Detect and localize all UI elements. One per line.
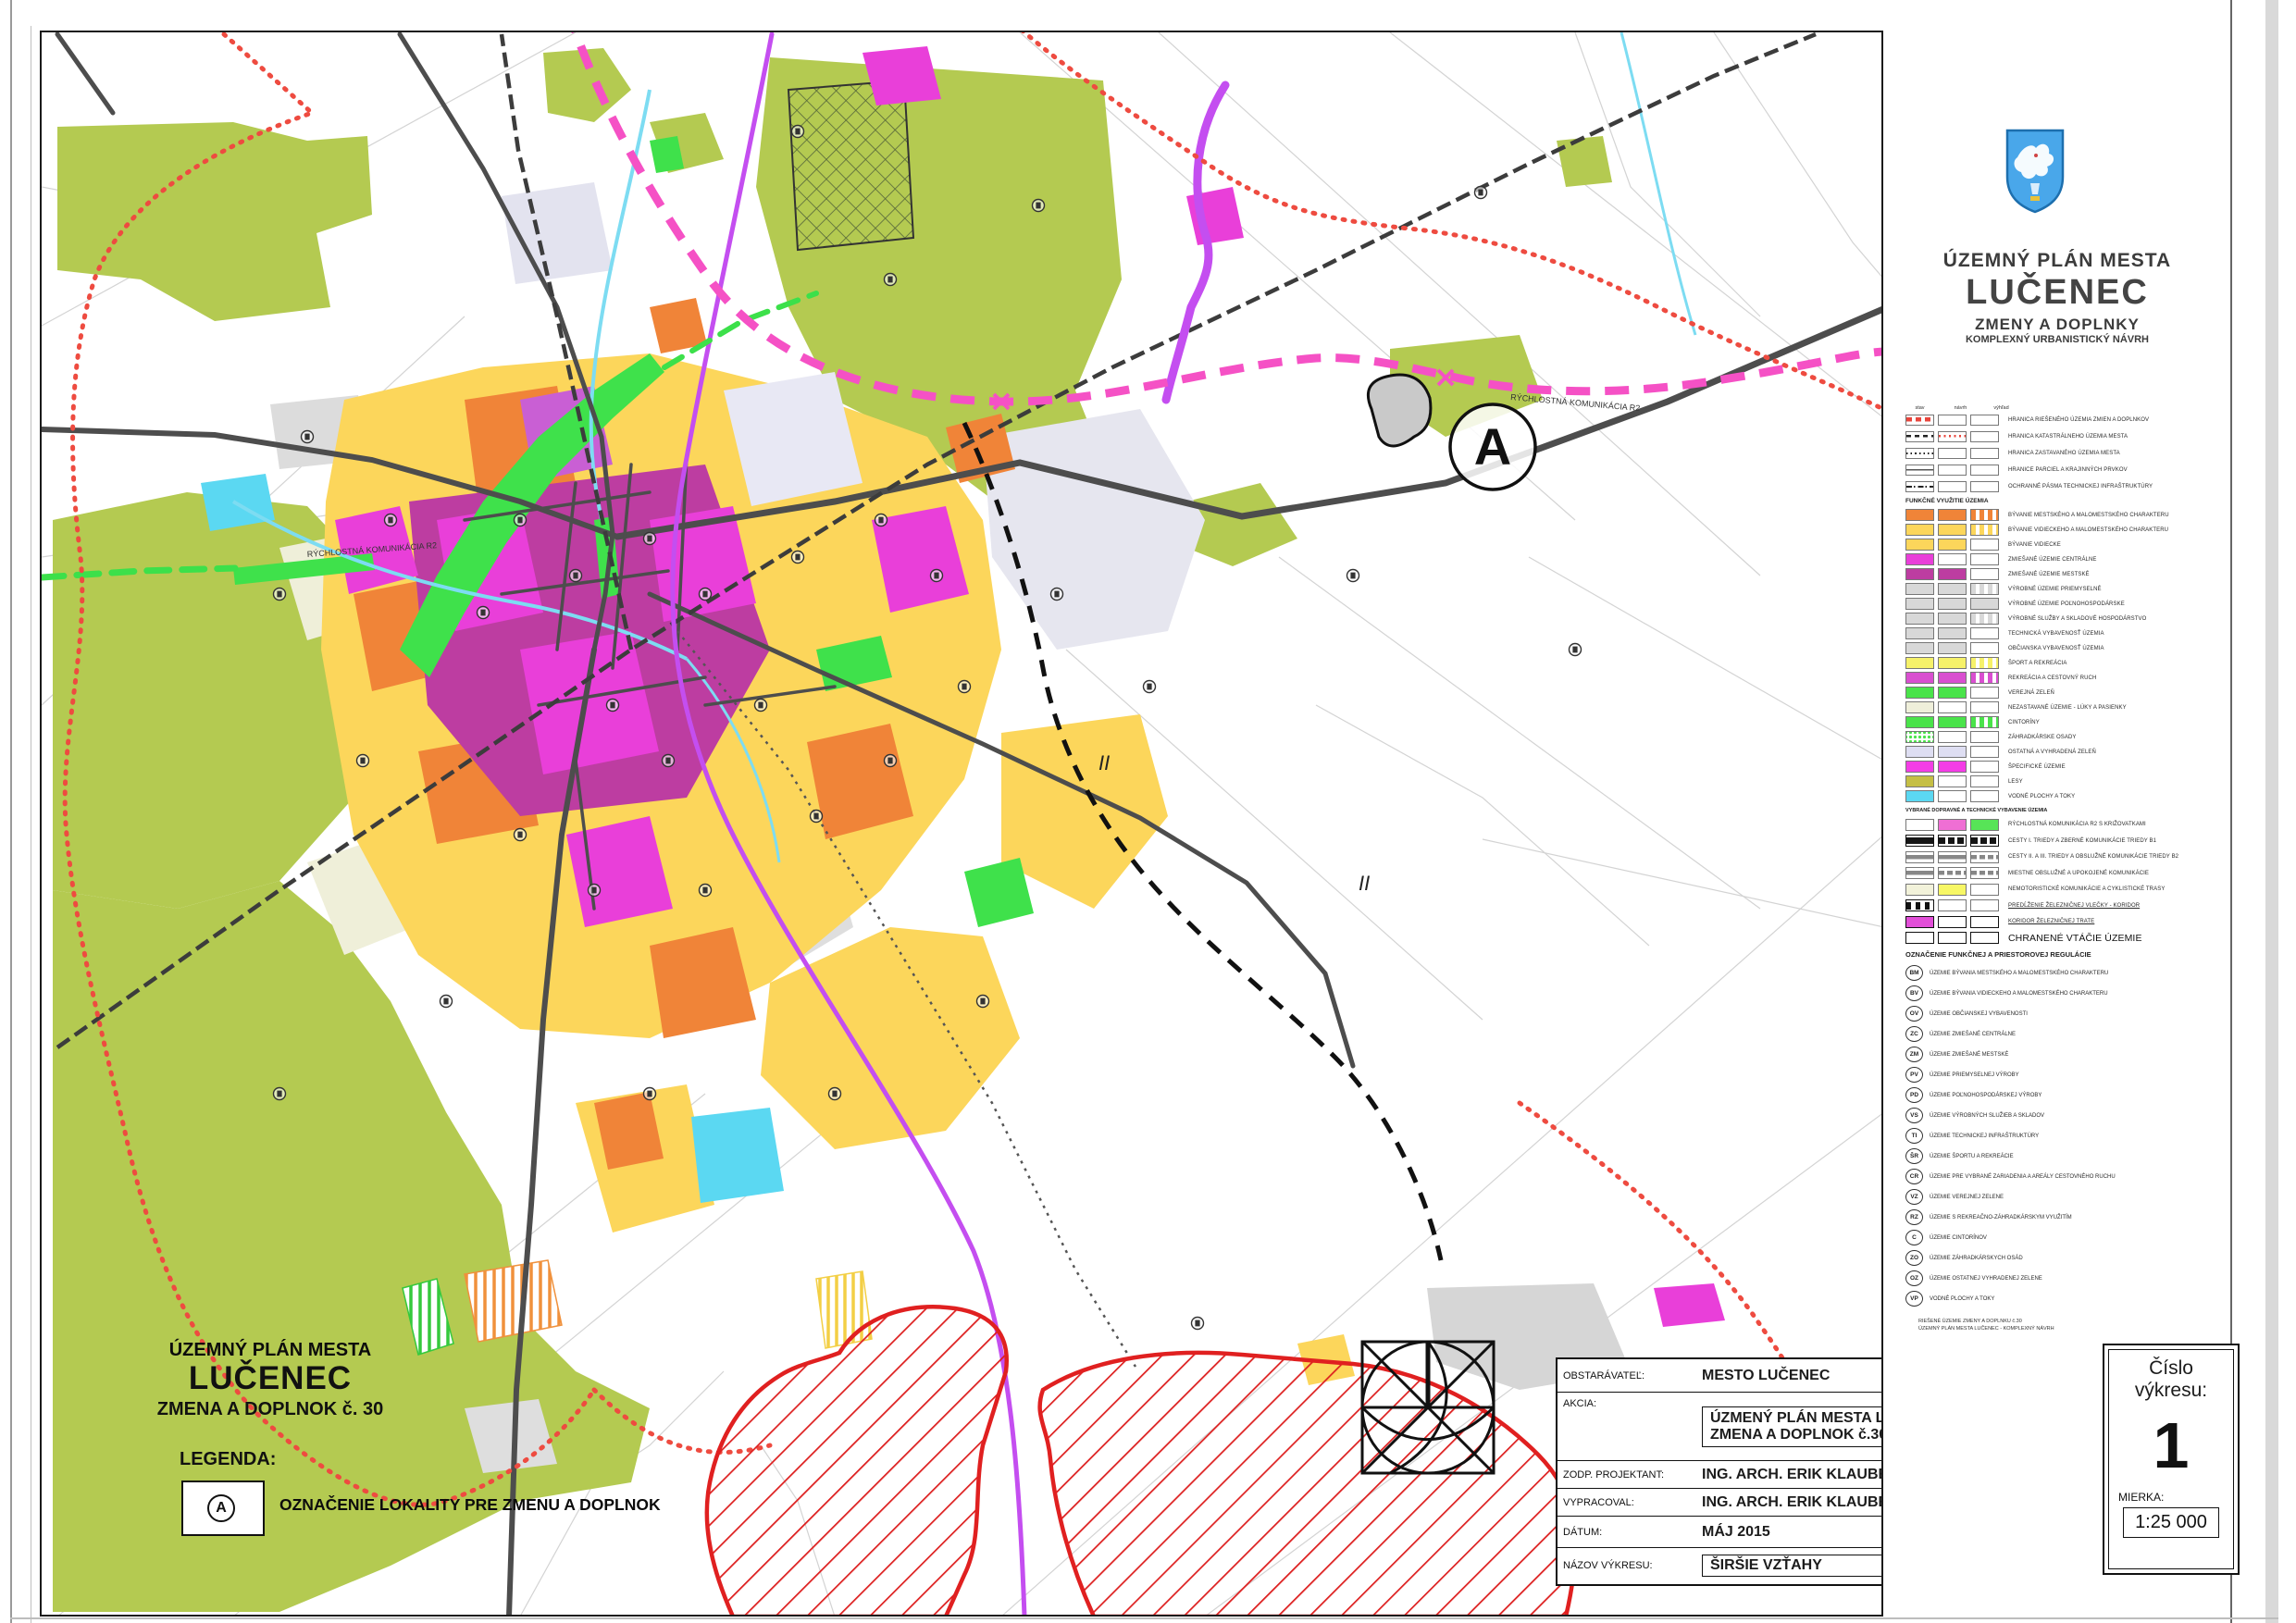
regulation-code-badge: VZ: [1905, 1189, 1923, 1205]
legend-swatch: [1938, 627, 1967, 639]
regulation-code-badge: VS: [1905, 1108, 1923, 1123]
legend-code-row: PDÚZEMIE POĽNOHOSPODÁRSKEJ VÝROBY: [1905, 1085, 2226, 1106]
legend-row-label: BÝVANIE VIDIECKEHO A MALOMESTSKÉHO CHARA…: [2008, 527, 2168, 533]
legend-code-row: ZOÚZEMIE ZÁHRADKÁRSKYCH OSÁD: [1905, 1248, 2226, 1269]
legend-swatch: [1938, 613, 1967, 625]
field-value: MESTO LUČENEC: [1702, 1368, 1830, 1384]
legend-row-label: OCHRANNÉ PÁSMA TECHNICKEJ INFRAŠTRUKTÚRY: [2008, 484, 2153, 489]
legend-row: BÝVANIE VIDIECKEHO A MALOMESTSKÉHO CHARA…: [1905, 524, 2226, 536]
legend-swatch: [1905, 524, 1934, 536]
field-label: DÁTUM:: [1558, 1527, 1702, 1538]
legend-section-header: OZNAČENIE FUNKČNEJ A PRIESTOROVEJ REGULÁ…: [1905, 950, 2226, 959]
legend-swatch: [1905, 687, 1934, 699]
field-value: ŠIRŠIE VZŤAHY: [1710, 1557, 1822, 1573]
legend-row-label: VÝROBNÉ SLUŽBY A SKLADOVÉ HOSPODÁRSTVO: [2008, 616, 2146, 622]
legend-swatch: [1970, 583, 1999, 595]
legend-swatch: [1970, 613, 1999, 625]
legend-row-label: HRANICA RIEŠENÉHO ÚZEMIA ZMIEN A DOPLNKO…: [2008, 417, 2149, 423]
legend-swatch: [1938, 431, 1967, 442]
legend-swatch: [1938, 790, 1967, 802]
legend-swatch: [1970, 851, 1999, 863]
legend-swatch: [1970, 642, 1999, 654]
regulation-code-badge: PD: [1905, 1087, 1923, 1103]
legend-row: ZMIEŠANÉ ÚZEMIE CENTRÁLNE: [1905, 553, 2226, 565]
legend-swatch: [1970, 916, 1999, 928]
map-legend-label: LEGENDA:: [180, 1449, 276, 1470]
map-legend: stav návrh výhľad HRANICA RIEŠENÉHO ÚZEM…: [1905, 405, 2226, 1332]
legend-swatch: [1905, 448, 1934, 459]
legend-swatch: [1905, 481, 1934, 492]
legend-row-label: CESTY I. TRIEDY A ZBERNÉ KOMUNIKÁCIE TRI…: [2008, 838, 2156, 844]
legend-col-header: návrh: [1946, 405, 1975, 411]
legend-row-label: HRANICA KATASTRÁLNEHO ÚZEMIA MESTA: [2008, 434, 2128, 440]
legend-row: BÝVANIE VIDIECKE: [1905, 539, 2226, 551]
legend-code-label: ÚZEMIE S REKREAČNO-ZÁHRADKÁRSKYM VYUŽITÍ…: [1930, 1215, 2072, 1220]
legend-code-row: OVÚZEMIE OBČIANSKEJ VYBAVENOSTI: [1905, 1004, 2226, 1024]
legend-row-label: PREDĹŽENIE ŽELEZNIČNEJ VLEČKY - KORIDOR: [2008, 903, 2140, 909]
legend-footnote: RIEŠENÉ ÚZEMIE ZMENY A DOPLNKU č.30: [1918, 1319, 2226, 1324]
legend-code-row: BMÚZEMIE BÝVANIA MESTSKÉHO A MALOMESTSKÉ…: [1905, 963, 2226, 984]
legend-row-label: VÝROBNÉ ÚZEMIE POĽNOHOSPODÁRSKE: [2008, 601, 2125, 607]
legend-swatch: [1938, 524, 1967, 536]
legend-code-row: BVÚZEMIE BÝVANIA VIDIECKEHO A MALOMESTSK…: [1905, 984, 2226, 1004]
legend-swatch: [1970, 884, 1999, 896]
map-title-line3: ZMENA A DOPLNOK č. 30: [113, 1399, 428, 1420]
field-label: ZODP. PROJEKTANT:: [1558, 1469, 1702, 1481]
legend-swatch: [1970, 899, 1999, 911]
legend-swatch: [1905, 932, 1934, 944]
legend-row-label: KORIDOR ŽELEZNIČNEJ TRATE: [2008, 919, 2094, 924]
legend-swatch: [1970, 932, 1999, 944]
legend-swatch: [1938, 867, 1967, 879]
legend-swatch: [1970, 415, 1999, 426]
legend-swatch: [1905, 851, 1934, 863]
field-value: ING. ARCH. ERIK KLAUBERT: [1702, 1494, 1883, 1511]
legend-swatch: [1905, 746, 1934, 758]
title-block-row: DÁTUM: MÁJ 2015: [1558, 1517, 1883, 1548]
plan-sheet: A II II RÝCHLOSTNÁ KOMUNIKÁCIA R2 RÝCHLO…: [0, 0, 2296, 1623]
legend-swatch: [1938, 932, 1967, 944]
legend-swatch: [1938, 899, 1967, 911]
legend-row: CESTY II. A III. TRIEDY A OBSLUŽNÉ KOMUN…: [1905, 850, 2226, 863]
legend-code-label: ÚZEMIE OBČIANSKEJ VYBAVENOSTI: [1930, 1011, 2028, 1017]
legend-row: HRANICE PARCIEL A KRAJINNÝCH PRVKOV: [1905, 464, 2226, 476]
regulation-code-badge: ZO: [1905, 1250, 1923, 1266]
scale-value: 1:25 000: [2123, 1507, 2219, 1538]
regulation-code-badge: ZC: [1905, 1026, 1923, 1042]
legend-row: CESTY I. TRIEDY A ZBERNÉ KOMUNIKÁCIE TRI…: [1905, 835, 2226, 848]
legend-code-row: VPVODNÉ PLOCHY A TOKY: [1905, 1289, 2226, 1309]
legend-swatch: [1938, 851, 1967, 863]
legend-code-row: CÚZEMIE CINTORÍNOV: [1905, 1228, 2226, 1248]
legend-code-label: ÚZEMIE OSTATNEJ VYHRADENEJ ZELENE: [1930, 1276, 2042, 1282]
title-block-row: ZODP. PROJEKTANT: ING. ARCH. ERIK KLAUBE…: [1558, 1461, 1883, 1489]
legend-row-label: ZMIEŠANÉ ÚZEMIE CENTRÁLNE: [2008, 557, 2097, 563]
legend-row: VÝROBNÉ ÚZEMIE PRIEMYSELNÉ: [1905, 583, 2226, 595]
legend-swatch: [1905, 583, 1934, 595]
legend-marker-description: OZNAČENIE LOKALITY PRE ZMENU A DOPLNOK: [279, 1495, 661, 1515]
legend-swatch: [1905, 701, 1934, 713]
legend-row-label: BÝVANIE VIDIECKE: [2008, 542, 2061, 548]
legend-row-label: RÝCHLOSTNÁ KOMUNIKÁCIA R2 S KRIŽOVATKAMI: [2008, 822, 2146, 827]
map-title-line2: LUČENEC: [113, 1360, 428, 1397]
legend-row: ZÁHRADKÁRSKE OSADY: [1905, 731, 2226, 743]
legend-swatch: [1970, 716, 1999, 728]
legend-row: VÝROBNÉ ÚZEMIE POĽNOHOSPODÁRSKE: [1905, 598, 2226, 610]
drawing-number-label: Číslo: [2149, 1357, 2193, 1380]
legend-code-label: ÚZEMIE PRE VYBRANÉ ZARIADENIA A AREÁLY C…: [1930, 1174, 2116, 1180]
legend-swatch: [1938, 775, 1967, 787]
scale-label: MIERKA:: [2118, 1491, 2164, 1504]
legend-row-label: BÝVANIE MESTSKÉHO A MALOMESTSKÉHO CHARAK…: [2008, 513, 2169, 518]
legend-code-label: ÚZEMIE VEREJNEJ ZELENE: [1930, 1195, 2004, 1200]
legend-swatch: [1970, 657, 1999, 669]
regulation-code-badge: OV: [1905, 1006, 1923, 1022]
legend-swatch: [1905, 775, 1934, 787]
legend-transport-symbols: RÝCHLOSTNÁ KOMUNIKÁCIA R2 S KRIŽOVATKAMI…: [1905, 818, 2226, 945]
legend-row: BÝVANIE MESTSKÉHO A MALOMESTSKÉHO CHARAK…: [1905, 509, 2226, 521]
legend-swatch: [1970, 775, 1999, 787]
field-label: VYPRACOVAL:: [1558, 1497, 1702, 1508]
legend-swatch: [1905, 672, 1934, 684]
legend-swatch: [1938, 884, 1967, 896]
drawing-number-inner: Číslo výkresu: 1 MIERKA: 1:25 000: [2108, 1349, 2234, 1569]
regulation-code-badge: VP: [1905, 1291, 1923, 1307]
panel-title-line1: ÚZEMNÝ PLÁN MESTA: [1885, 250, 2229, 272]
legend-swatch: [1970, 687, 1999, 699]
legend-swatch: [1938, 672, 1967, 684]
legend-swatch: [1970, 448, 1999, 459]
legend-swatch: [1938, 553, 1967, 565]
locality-a-site-blob: [1368, 375, 1431, 446]
legend-swatch: [1905, 465, 1934, 476]
locality-a-label: A: [1474, 417, 1511, 476]
legend-code-row: PVÚZEMIE PRIEMYSELNEJ VÝROBY: [1905, 1065, 2226, 1085]
legend-swatch: [1905, 657, 1934, 669]
field-value-box: ŠIRŠIE VZŤAHY: [1702, 1555, 1883, 1577]
legend-swatch: [1938, 598, 1967, 610]
legend-swatch: [1938, 568, 1967, 580]
legend-swatch: [1970, 867, 1999, 879]
regulation-code-badge: TI: [1905, 1128, 1923, 1144]
locality-marker-icon: A: [207, 1494, 235, 1522]
legend-line-symbols: HRANICA RIEŠENÉHO ÚZEMIA ZMIEN A DOPLNKO…: [1905, 414, 2226, 492]
legend-swatch: [1905, 539, 1934, 551]
legend-swatch: [1970, 568, 1999, 580]
legend-swatch: [1938, 539, 1967, 551]
legend-row-label: ŠPECIFICKÉ ÚZEMIE: [2008, 764, 2066, 770]
legend-row-label: HRANICE PARCIEL A KRAJINNÝCH PRVKOV: [2008, 467, 2128, 473]
legend-row: OCHRANNÉ PÁSMA TECHNICKEJ INFRAŠTRUKTÚRY: [1905, 480, 2226, 492]
legend-row-label: TECHNICKÁ VYBAVENOSŤ ÚZEMIA: [2008, 631, 2104, 637]
drawing-number-label: výkresu:: [2135, 1380, 2207, 1402]
legend-swatch: [1905, 916, 1934, 928]
legend-row: REKREÁCIA A CESTOVNÝ RUCH: [1905, 672, 2226, 684]
legend-swatch: [1938, 701, 1967, 713]
legend-row: NEZASTAVANÉ ÚZEMIE - LÚKY A PASIENKY: [1905, 701, 2226, 713]
legend-row-label: NEZASTAVANÉ ÚZEMIE - LÚKY A PASIENKY: [2008, 705, 2127, 711]
legend-code-row: RZÚZEMIE S REKREAČNO-ZÁHRADKÁRSKYM VYUŽI…: [1905, 1208, 2226, 1228]
legend-swatch: [1938, 465, 1967, 476]
field-value: ZMENA A DOPLNOK č.30: [1710, 1427, 1883, 1443]
legend-swatch: [1938, 583, 1967, 595]
legend-row: HRANICA KATASTRÁLNEHO ÚZEMIA MESTA: [1905, 430, 2226, 442]
field-label: NÁZOV VÝKRESU:: [1558, 1560, 1702, 1571]
legend-swatch: [1970, 819, 1999, 831]
locality-a-marker: A: [1450, 404, 1535, 489]
regulation-code-badge: CR: [1905, 1169, 1923, 1184]
legend-swatch: [1970, 835, 1999, 847]
regulation-code-badge: BM: [1905, 965, 1923, 981]
legend-row-label: OBČIANSKA VYBAVENOSŤ ÚZEMIA: [2008, 646, 2104, 651]
panel-title-line3: ZMENY A DOPLNKY: [1885, 316, 2229, 334]
legend-swatch: [1938, 731, 1967, 743]
legend-swatch: [1905, 598, 1934, 610]
legend-row: PREDĹŽENIE ŽELEZNIČNEJ VLEČKY - KORIDOR: [1905, 899, 2226, 912]
legend-code-label: ÚZEMIE ZMIEŠANÉ CENTRÁLNE: [1930, 1032, 2016, 1037]
scan-edge-right: [2265, 0, 2278, 1623]
legend-swatch: [1970, 465, 1999, 476]
legend-swatch: [1905, 867, 1934, 879]
legend-swatch: [1970, 509, 1999, 521]
legend-row-label: VÝROBNÉ ÚZEMIE PRIEMYSELNÉ: [2008, 587, 2102, 592]
legend-row-label: ZÁHRADKÁRSKE OSADY: [2008, 735, 2076, 740]
legend-code-label: ÚZEMIE BÝVANIA VIDIECKEHO A MALOMESTSKÉH…: [1930, 991, 2108, 997]
legend-swatch: [1970, 524, 1999, 536]
legend-swatch: [1938, 657, 1967, 669]
legend-swatch: [1905, 431, 1934, 442]
field-label: AKCIA:: [1558, 1398, 1702, 1409]
legend-code-row: ZCÚZEMIE ZMIEŠANÉ CENTRÁLNE: [1905, 1024, 2226, 1045]
legend-row: KORIDOR ŽELEZNIČNEJ TRATE: [1905, 915, 2226, 928]
legend-swatch: [1938, 819, 1967, 831]
legend-row: CHRANENÉ VTÁČIE ÚZEMIE: [1905, 932, 2226, 945]
title-block-row: VYPRACOVAL: ING. ARCH. ERIK KLAUBERT: [1558, 1489, 1883, 1517]
legend-swatch: [1905, 731, 1934, 743]
legend-row-label: NEMOTORISTICKÉ KOMUNIKÁCIE A CYKLISTICKÉ…: [2008, 886, 2165, 892]
regulation-code-badge: OZ: [1905, 1270, 1923, 1286]
legend-section-header: VYBRANÉ DOPRAVNÉ A TECHNICKÉ VYBAVENIE Ú…: [1905, 808, 2226, 813]
legend-swatch: [1970, 481, 1999, 492]
legend-row-label: CESTY II. A III. TRIEDY A OBSLUŽNÉ KOMUN…: [2008, 854, 2178, 860]
title-block-row: AKCIA: ÚZMENÝ PLÁN MESTA LUČENEC ZMENA A…: [1558, 1393, 1883, 1461]
legend-swatch: [1970, 431, 1999, 442]
legend-col-header: výhľad: [1987, 405, 2016, 411]
legend-column-headers: stav návrh výhľad: [1905, 405, 2226, 411]
legend-code-label: ÚZEMIE ZMIEŠANÉ MESTSKÉ: [1930, 1052, 2008, 1058]
legend-row: MIESTNE OBSLUŽNÉ A UPOKOJENÉ KOMUNIKÁCIE: [1905, 867, 2226, 880]
legend-swatch: [1938, 746, 1967, 758]
regulation-code-badge: RZ: [1905, 1209, 1923, 1225]
legend-row-label: HRANICA ZASTAVANÉHO ÚZEMIA MESTA: [2008, 451, 2120, 456]
drawing-number-value: 1: [2153, 1413, 2190, 1478]
legend-swatch: [1938, 642, 1967, 654]
road-class-label: II: [1359, 872, 1370, 895]
title-block: OBSTARÁVATEĽ: MESTO LUČENEC AKCIA: ÚZMEN…: [1556, 1357, 1883, 1586]
legend-row: OBČIANSKA VYBAVENOSŤ ÚZEMIA: [1905, 642, 2226, 654]
legend-swatch: [1905, 761, 1934, 773]
legend-code-row: VSÚZEMIE VÝROBNÝCH SLUŽIEB A SKLADOV: [1905, 1106, 2226, 1126]
legend-swatch: [1938, 761, 1967, 773]
legend-row: VEREJNÁ ZELEŇ: [1905, 687, 2226, 699]
legend-row: ZMIEŠANÉ ÚZEMIE MESTSKÉ: [1905, 568, 2226, 580]
field-value: ÚZMENÝ PLÁN MESTA LUČENEC: [1710, 1410, 1883, 1427]
legend-swatch: [1905, 835, 1934, 847]
legend-marker-box: A: [181, 1481, 265, 1536]
legend-swatch: [1970, 672, 1999, 684]
legend-swatch: [1905, 642, 1934, 654]
legend-swatch: [1905, 613, 1934, 625]
legend-swatch: [1905, 716, 1934, 728]
legend-footnotes: RIEŠENÉ ÚZEMIE ZMENY A DOPLNKU č.30ÚZEMN…: [1918, 1319, 2226, 1332]
legend-swatch: [1905, 553, 1934, 565]
road-name-label: RÝCHLOSTNÁ KOMUNIKÁCIA R2: [1510, 392, 1641, 413]
legend-row-label: ŠPORT A REKREÁCIA: [2008, 661, 2067, 666]
title-block-row: NÁZOV VÝKRESU: ŠIRŠIE VZŤAHY: [1558, 1548, 1883, 1583]
road-class-label: II: [1098, 751, 1110, 774]
legend-row-label: CHRANENÉ VTÁČIE ÚZEMIE: [2008, 933, 2142, 944]
legend-code-row: OZÚZEMIE OSTATNEJ VYHRADENEJ ZELENE: [1905, 1269, 2226, 1289]
legend-row: OSTATNÁ A VYHRADENÁ ZELEŇ: [1905, 746, 2226, 758]
legend-code-symbols: BMÚZEMIE BÝVANIA MESTSKÉHO A MALOMESTSKÉ…: [1905, 963, 2226, 1309]
legend-row: NEMOTORISTICKÉ KOMUNIKÁCIE A CYKLISTICKÉ…: [1905, 883, 2226, 896]
legend-swatch: [1970, 539, 1999, 551]
lucenec-coat-of-arms-icon: [2004, 128, 2066, 215]
legend-code-row: VZÚZEMIE VEREJNEJ ZELENE: [1905, 1187, 2226, 1208]
legend-row-label: VODNÉ PLOCHY A TOKY: [2008, 794, 2075, 799]
regulation-code-badge: PV: [1905, 1067, 1923, 1083]
legend-section-header: FUNKČNÉ VYUŽITIE ÚZEMIA: [1905, 498, 2226, 504]
legend-swatch: [1938, 509, 1967, 521]
legend-swatch: [1970, 553, 1999, 565]
legend-swatch: [1905, 509, 1934, 521]
title-block-row: OBSTARÁVATEĽ: MESTO LUČENEC: [1558, 1359, 1883, 1393]
field-label: OBSTARÁVATEĽ:: [1558, 1370, 1702, 1381]
legend-code-label: ÚZEMIE BÝVANIA MESTSKÉHO A MALOMESTSKÉHO…: [1930, 971, 2108, 976]
legend-swatch: [1970, 746, 1999, 758]
regulation-code-badge: ZM: [1905, 1047, 1923, 1062]
legend-row-label: CINTORÍNY: [2008, 720, 2040, 725]
legend-swatch: [1938, 916, 1967, 928]
legend-swatch: [1938, 687, 1967, 699]
legend-swatch: [1970, 761, 1999, 773]
legend-col-header: stav: [1905, 405, 1934, 411]
legend-code-label: ÚZEMIE PRIEMYSELNEJ VÝROBY: [1930, 1072, 2019, 1078]
legend-footnote: ÚZEMNÝ PLÁN MESTA LUČENEC - KOMPLEXNÝ NÁ…: [1918, 1326, 2226, 1332]
legend-row: LESY: [1905, 775, 2226, 787]
legend-swatch: [1905, 899, 1934, 911]
field-value: ING. ARCH. ERIK KLAUBERT: [1702, 1467, 1883, 1483]
scan-edge-left: [10, 0, 12, 1623]
legend-code-label: ÚZEMIE CINTORÍNOV: [1930, 1235, 1987, 1241]
legend-code-label: ÚZEMIE TECHNICKEJ INFRAŠTRUKTÚRY: [1930, 1134, 2039, 1139]
legend-swatch: [1905, 884, 1934, 896]
legend-code-row: TIÚZEMIE TECHNICKEJ INFRAŠTRUKTÚRY: [1905, 1126, 2226, 1146]
legend-code-label: ÚZEMIE VÝROBNÝCH SLUŽIEB A SKLADOV: [1930, 1113, 2044, 1119]
legend-row-label: REKREÁCIA A CESTOVNÝ RUCH: [2008, 675, 2096, 681]
regulation-code-badge: ŠR: [1905, 1148, 1923, 1164]
map-canvas: A II II RÝCHLOSTNÁ KOMUNIKÁCIA R2 RÝCHLO…: [40, 31, 1883, 1617]
legend-swatch: [1938, 448, 1967, 459]
legend-code-row: ZMÚZEMIE ZMIEŠANÉ MESTSKÉ: [1905, 1045, 2226, 1065]
legend-code-row: ŠRÚZEMIE ŠPORTU A REKREÁCIE: [1905, 1146, 2226, 1167]
legend-swatch: [1938, 481, 1967, 492]
legend-swatch: [1970, 627, 1999, 639]
legend-swatch: [1905, 415, 1934, 426]
legend-row: HRANICA RIEŠENÉHO ÚZEMIA ZMIEN A DOPLNKO…: [1905, 414, 2226, 426]
legend-swatch: [1905, 568, 1934, 580]
legend-row: HRANICA ZASTAVANÉHO ÚZEMIA MESTA: [1905, 447, 2226, 459]
legend-code-label: VODNÉ PLOCHY A TOKY: [1930, 1296, 1994, 1302]
legend-code-label: ÚZEMIE ZÁHRADKÁRSKYCH OSÁD: [1930, 1256, 2023, 1261]
legend-row-label: ZMIEŠANÉ ÚZEMIE MESTSKÉ: [2008, 572, 2090, 577]
regulation-code-badge: C: [1905, 1230, 1923, 1245]
legend-code-row: CRÚZEMIE PRE VYBRANÉ ZARIADENIA A AREÁLY…: [1905, 1167, 2226, 1187]
legend-row: TECHNICKÁ VYBAVENOSŤ ÚZEMIA: [1905, 627, 2226, 639]
legend-row: ŠPECIFICKÉ ÚZEMIE: [1905, 761, 2226, 773]
legend-swatch: [1905, 627, 1934, 639]
legend-row-label: OSTATNÁ A VYHRADENÁ ZELEŇ: [2008, 750, 2096, 755]
drawing-number-box: Číslo výkresu: 1 MIERKA: 1:25 000: [2103, 1344, 2240, 1575]
legend-swatch: [1970, 598, 1999, 610]
legend-row: CINTORÍNY: [1905, 716, 2226, 728]
legend-row-label: MIESTNE OBSLUŽNÉ A UPOKOJENÉ KOMUNIKÁCIE: [2008, 871, 2149, 876]
legend-area-symbols: BÝVANIE MESTSKÉHO A MALOMESTSKÉHO CHARAK…: [1905, 509, 2226, 802]
legend-row: VÝROBNÉ SLUŽBY A SKLADOVÉ HOSPODÁRSTVO: [1905, 613, 2226, 625]
panel-title-line4: KOMPLEXNÝ URBANISTICKÝ NÁVRH: [1885, 334, 2229, 345]
legend-swatch: [1938, 716, 1967, 728]
field-value: MÁJ 2015: [1702, 1524, 1770, 1541]
regulation-code-badge: BV: [1905, 985, 1923, 1001]
legend-row: ŠPORT A REKREÁCIA: [1905, 657, 2226, 669]
legend-swatch: [1938, 415, 1967, 426]
legend-code-label: ÚZEMIE ŠPORTU A REKREÁCIE: [1930, 1154, 2014, 1159]
legend-swatch: [1905, 819, 1934, 831]
legend-row: VODNÉ PLOCHY A TOKY: [1905, 790, 2226, 802]
legend-swatch: [1970, 701, 1999, 713]
legend-code-label: ÚZEMIE POĽNOHOSPODÁRSKEJ VÝROBY: [1930, 1093, 2042, 1098]
scan-edge-left-inner: [31, 26, 31, 1623]
legend-swatch: [1970, 731, 1999, 743]
legend-swatch: [1970, 790, 1999, 802]
scan-edge-bottom: [10, 1617, 2278, 1619]
legend-swatch: [1905, 790, 1934, 802]
legend-row-label: VEREJNÁ ZELEŇ: [2008, 690, 2054, 696]
legend-row: RÝCHLOSTNÁ KOMUNIKÁCIA R2 S KRIŽOVATKAMI: [1905, 818, 2226, 831]
legend-swatch: [1938, 835, 1967, 847]
legend-row-label: LESY: [2008, 779, 2023, 785]
field-value-box: ÚZMENÝ PLÁN MESTA LUČENEC ZMENA A DOPLNO…: [1702, 1406, 1883, 1447]
panel-title-line2: LUČENEC: [1885, 273, 2229, 313]
map-title-line1: ÚZEMNÝ PLÁN MESTA: [113, 1340, 428, 1361]
